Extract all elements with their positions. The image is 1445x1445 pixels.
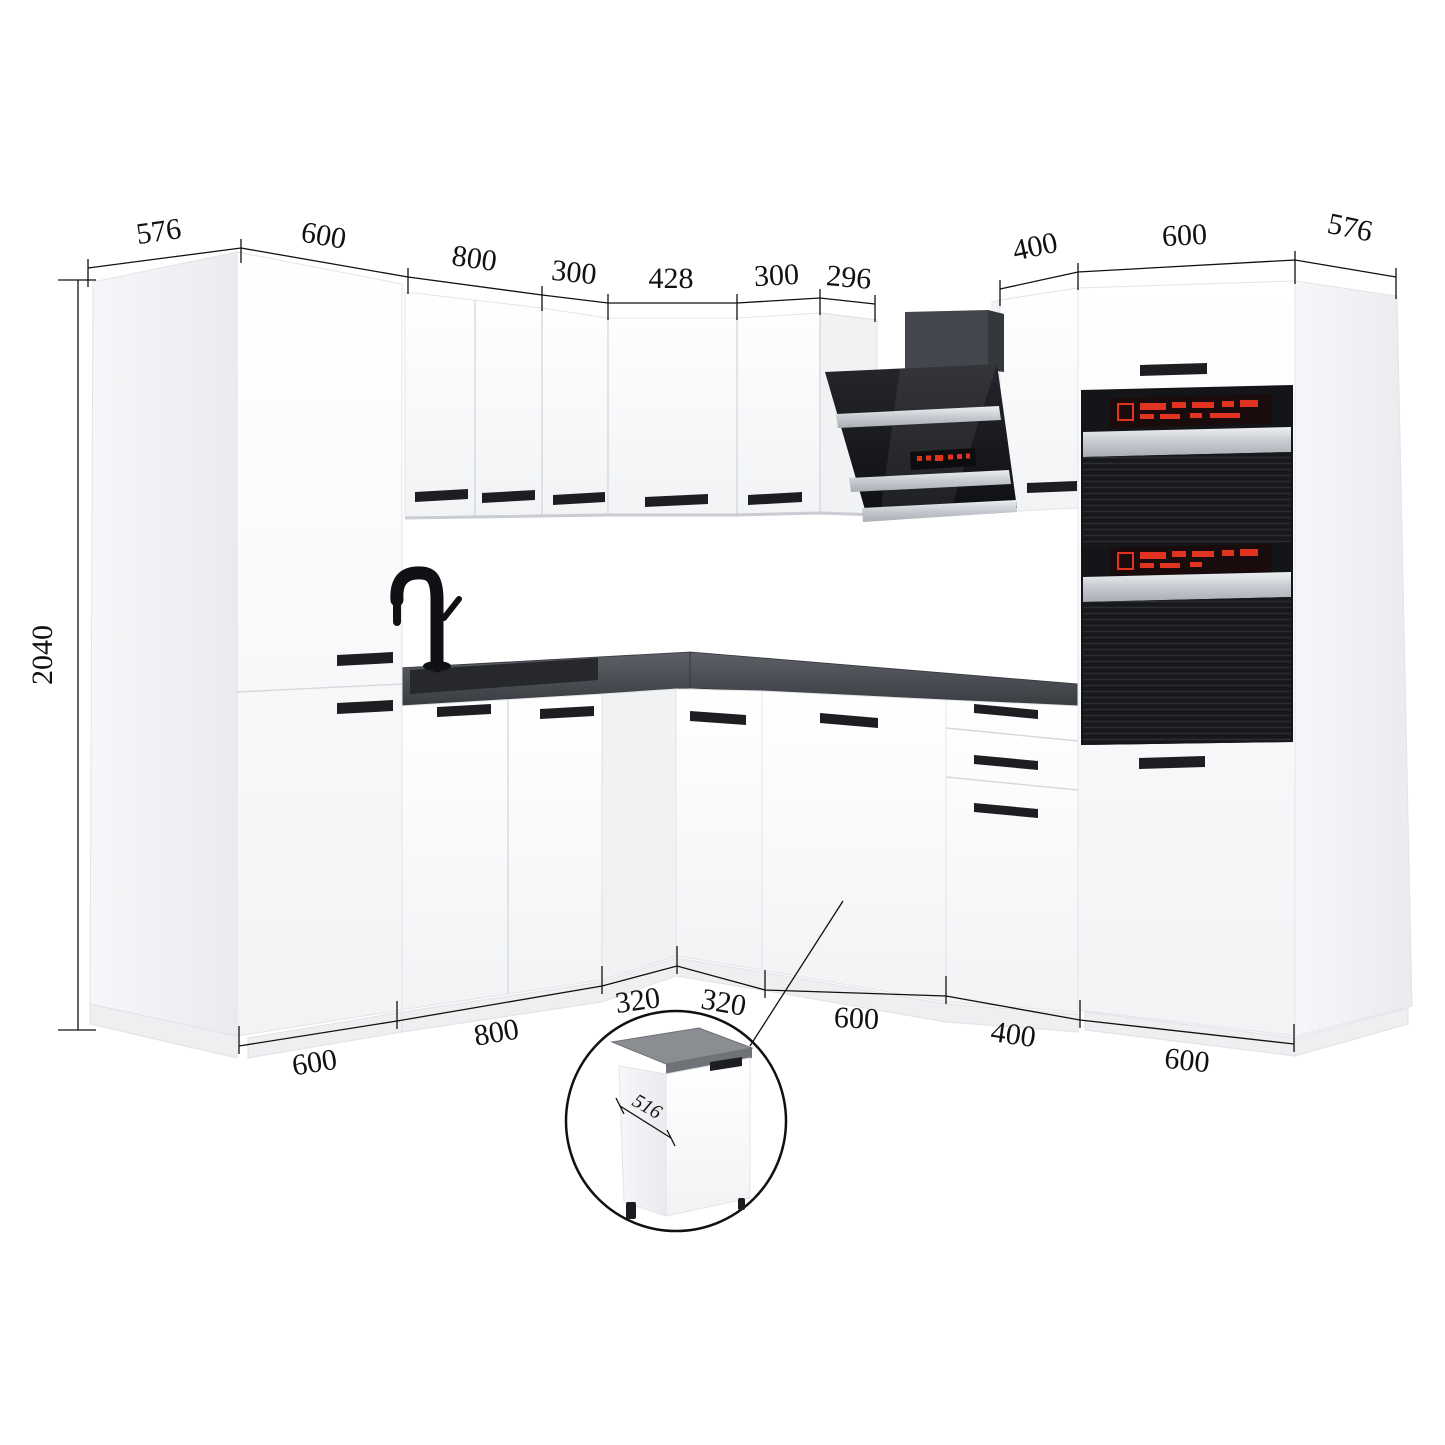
drawer-unit-400 — [946, 700, 1078, 1012]
pantry-front — [237, 252, 402, 1036]
hood-chimney-side — [988, 310, 1004, 372]
dimension-left-height: 2040 — [26, 280, 96, 1030]
dim-label-800: 800 — [450, 239, 499, 278]
dim-label-576-left: 576 — [134, 212, 183, 251]
dim-label-400: 400 — [1010, 226, 1061, 268]
oven1-handle — [1083, 427, 1291, 457]
wall-400-handle — [1027, 481, 1077, 493]
dim-label-b600a: 600 — [290, 1043, 340, 1083]
dim-label-600: 600 — [299, 215, 349, 255]
left-tall-cabinet — [90, 252, 402, 1058]
corner-base-door — [676, 689, 762, 970]
dim-label-2040: 2040 — [26, 625, 59, 685]
oven1-display — [1110, 394, 1272, 428]
inset-adjustable-foot — [738, 1198, 745, 1210]
base-cabinets — [400, 689, 1078, 1032]
corner-base-panel — [602, 689, 676, 980]
oven-cabinet-side — [1295, 281, 1412, 1036]
oven2-display — [1110, 544, 1272, 576]
dim-label-b600b: 600 — [833, 1001, 880, 1036]
wall-cabinet-row — [405, 292, 877, 518]
dim-label-b600c: 600 — [1163, 1042, 1211, 1080]
dim-label-300b: 300 — [753, 258, 800, 293]
base-cabinet-800 — [400, 694, 602, 1010]
base-cabinet-600 — [762, 691, 946, 1002]
kitchen-dimension-diagram: 576 600 800 300 428 300 296 400 600 576 … — [0, 0, 1445, 1445]
pantry-side-panel — [90, 252, 237, 1036]
dim-label-600r: 600 — [1161, 218, 1208, 253]
oven-cabinet-bottom-handle — [1139, 756, 1205, 769]
inset-cabinet-side — [619, 1066, 666, 1216]
inset-adjustable-foot — [626, 1202, 636, 1219]
wall-cabinets-front — [405, 292, 877, 517]
inset-cabinet-door — [666, 1058, 750, 1216]
oven-cabinet-top-handle — [1140, 363, 1207, 376]
oven-tall-cabinet — [1078, 281, 1412, 1056]
sink-faucet — [397, 573, 459, 671]
dim-label-296: 296 — [825, 259, 873, 296]
dim-label-428: 428 — [649, 262, 694, 295]
dim-label-576-right: 576 — [1325, 207, 1376, 249]
dim-label-300: 300 — [550, 254, 598, 292]
oven1-glass — [1083, 452, 1291, 547]
dim-label-b400: 400 — [989, 1015, 1038, 1054]
diagram-canvas: 576 600 800 300 428 300 296 400 600 576 … — [0, 0, 1445, 1445]
oven2-glass — [1083, 597, 1291, 745]
dim-label-b800: 800 — [471, 1012, 521, 1052]
oven2-handle — [1083, 572, 1291, 602]
hood-chimney — [905, 310, 988, 372]
